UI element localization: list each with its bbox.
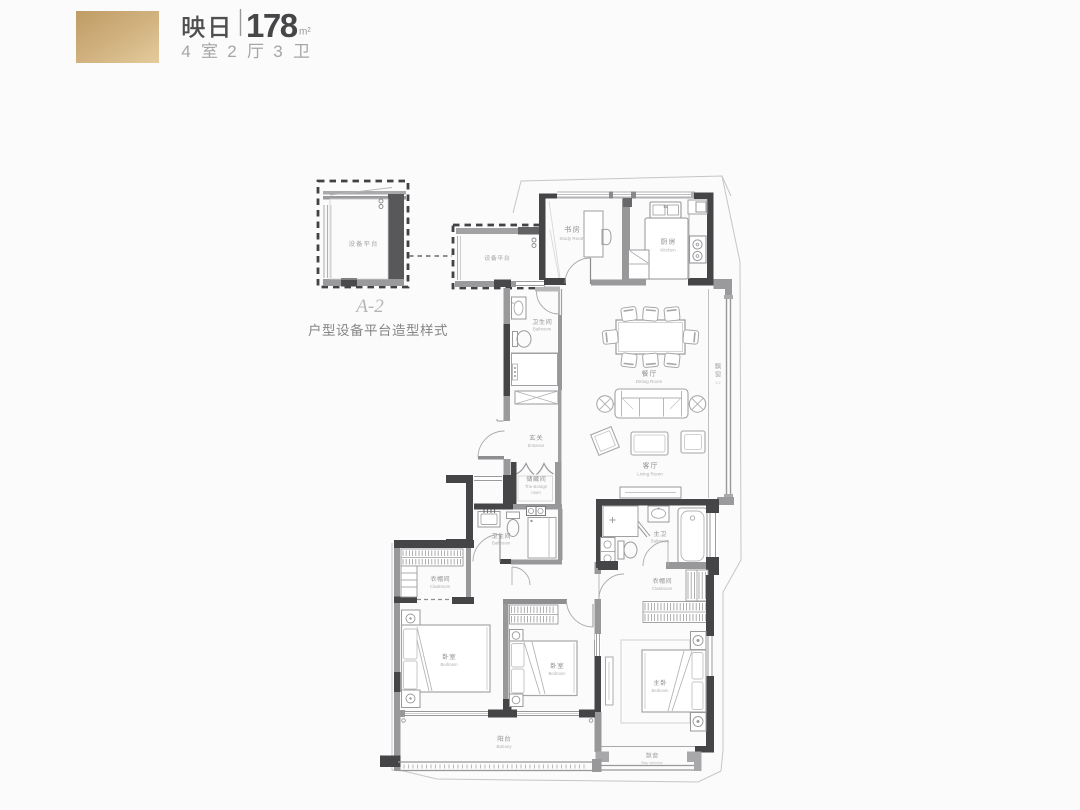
svg-text:Kitchen: Kitchen — [660, 248, 676, 253]
svg-text:Bedroom: Bedroom — [441, 662, 459, 667]
svg-text:Entrance: Entrance — [528, 443, 545, 448]
svg-text:A-2: A-2 — [354, 296, 384, 317]
svg-text:178: 178 — [246, 7, 298, 44]
svg-text:room: room — [531, 490, 541, 495]
svg-text:Bay window: Bay window — [641, 760, 662, 765]
svg-text:Dining Room: Dining Room — [636, 379, 663, 384]
svg-text:4: 4 — [181, 42, 190, 61]
svg-text:Study Room: Study Room — [559, 236, 584, 241]
svg-text:Bedroom: Bedroom — [549, 671, 567, 676]
svg-text:Cloakroom: Cloakroom — [652, 586, 673, 591]
svg-text:Bathroom: Bathroom — [533, 327, 552, 332]
svg-text:Bedroom: Bedroom — [652, 688, 670, 693]
svg-text:Balcony: Balcony — [497, 744, 513, 749]
svg-text:3: 3 — [273, 42, 282, 61]
svg-text:5.2: 5.2 — [716, 381, 721, 385]
svg-text:Bathroom: Bathroom — [492, 541, 511, 546]
svg-text:Living Room: Living Room — [637, 472, 663, 477]
svg-text:Cloakroom: Cloakroom — [430, 584, 451, 589]
svg-text:2: 2 — [227, 42, 236, 61]
svg-text:m²: m² — [299, 27, 311, 38]
svg-text:The storage: The storage — [525, 484, 548, 489]
